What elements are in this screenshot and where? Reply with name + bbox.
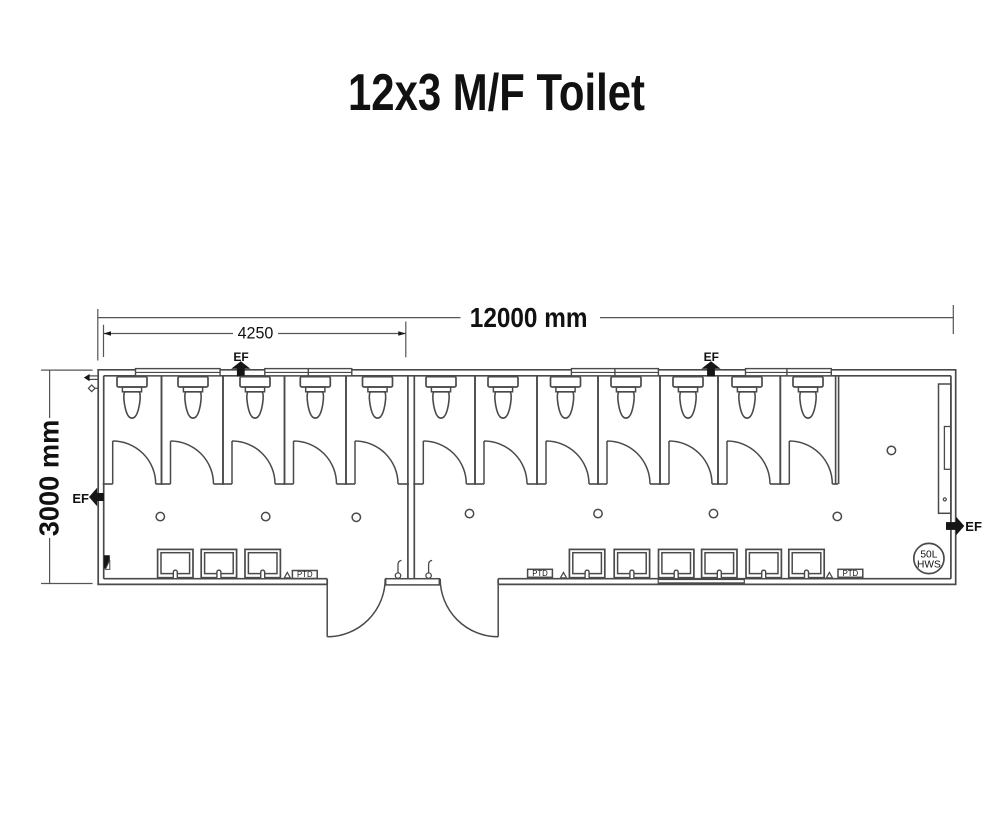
svg-text:EF: EF	[704, 350, 719, 364]
svg-text:4250: 4250	[238, 325, 274, 343]
svg-text:PTD: PTD	[532, 569, 548, 578]
svg-text:EF: EF	[965, 519, 982, 534]
svg-text:EF: EF	[233, 350, 248, 364]
svg-text:HWS: HWS	[917, 559, 941, 570]
svg-text:EF: EF	[72, 491, 89, 506]
svg-text:PTD: PTD	[843, 569, 859, 578]
svg-text:12x3 M/F Toilet: 12x3 M/F Toilet	[348, 63, 645, 121]
svg-text:12000 mm: 12000 mm	[470, 302, 588, 333]
svg-text:3000 mm: 3000 mm	[34, 420, 65, 537]
svg-text:PTD: PTD	[297, 570, 313, 579]
